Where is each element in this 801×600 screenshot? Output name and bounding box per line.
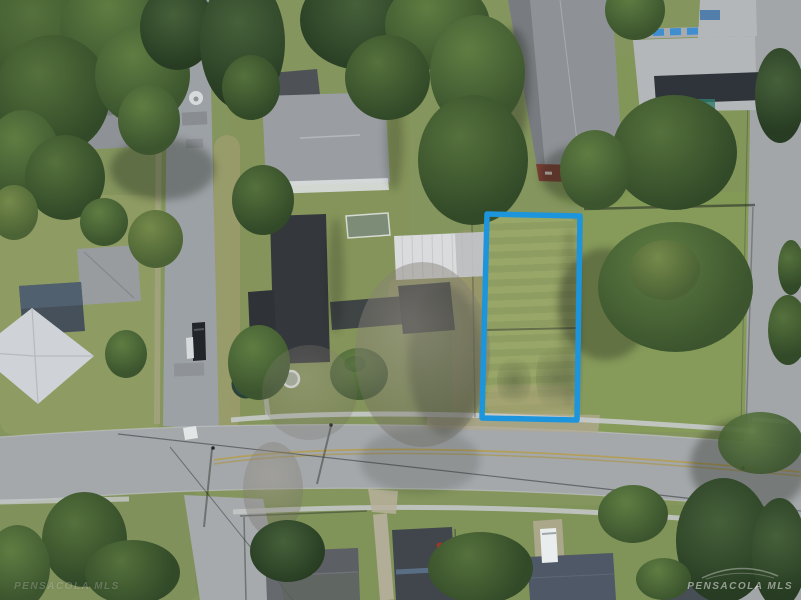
mls-watermark-text: PENSACOLA MLS	[687, 581, 793, 592]
mls-watermark-right: PENSACOLA MLS	[687, 566, 793, 592]
mls-watermark-left: PENSACOLA MLS	[14, 581, 120, 592]
property-boundary-highlight	[482, 214, 580, 420]
watermark-swoosh	[700, 566, 780, 580]
overlay-layer	[0, 0, 801, 600]
mls-watermark-text: PENSACOLA MLS	[14, 581, 120, 592]
aerial-photo: PENSACOLA MLS PENSACOLA MLS	[0, 0, 801, 600]
